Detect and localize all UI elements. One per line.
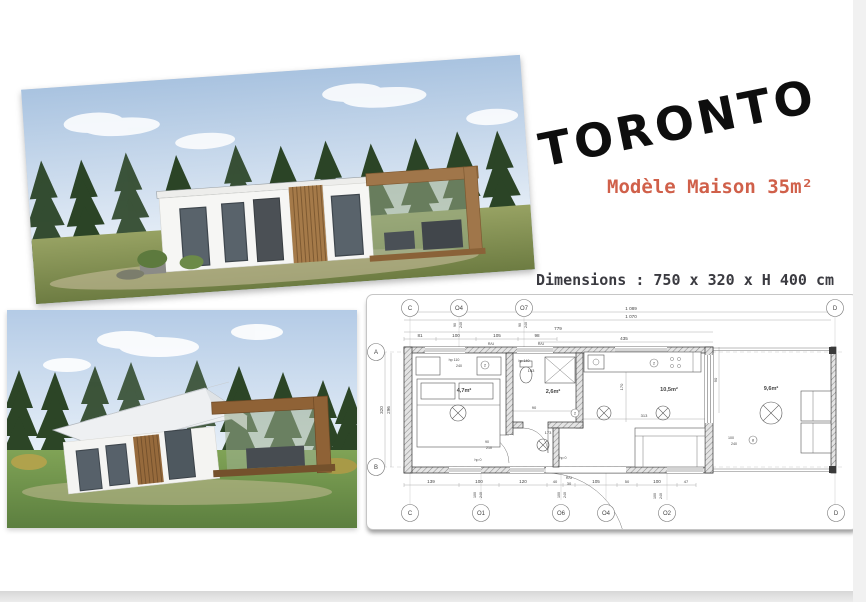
plan-dim-label: 240 (731, 442, 737, 446)
plan-dim-label: 240 (524, 322, 528, 328)
plan-grid-bubble-label: O4 (602, 511, 611, 517)
plan-grid-bubble-label: C (408, 511, 413, 517)
plan-grid-bubble-label: O7 (520, 306, 529, 312)
window (165, 429, 196, 479)
plan-dim-label: 313 (641, 413, 648, 418)
plan-dim-label: 240 (659, 493, 663, 499)
pergola (366, 166, 484, 260)
plan-room-label: 4,7m² (457, 387, 472, 394)
plan-grid-bubble-label: C (408, 306, 413, 312)
plan-grid-bubble-label: O6 (557, 511, 566, 517)
wood-slat-section (289, 185, 328, 263)
plan-dim-label: 1 089 (625, 306, 637, 311)
dimensions-text: Dimensions : 750 x 320 x H 400 cm (536, 271, 858, 289)
plan-dim-label: 240 (563, 492, 567, 498)
model-title: TORONTO (520, 65, 837, 180)
plan-dim-label: R/U (538, 342, 545, 346)
photo-render-gable-roof (7, 310, 357, 528)
plan-dim-label: 90 (518, 323, 522, 327)
front-door (253, 198, 283, 262)
plan-dim-label: 90 (453, 323, 457, 327)
plan-dim-label: R/U (566, 476, 573, 480)
plan-dim-label: 240 (479, 492, 483, 498)
plan-dim-label: 81 (417, 333, 423, 338)
plan-dim-label: hp 0 (475, 458, 482, 462)
window (222, 202, 248, 261)
plan-dim-label: 210 (486, 446, 492, 450)
plan-dim-label: 1 070 (625, 314, 637, 319)
window (76, 449, 102, 491)
window (331, 194, 363, 256)
plan-dim-label: 47 (684, 479, 689, 484)
outdoor-sofa (421, 219, 463, 250)
bush (11, 454, 47, 470)
page-edge-right (853, 0, 866, 602)
plan-dim-label: 163 (528, 368, 535, 373)
plan-dim-label: 105 (493, 333, 501, 338)
plan-grid-bubble-label: O4 (455, 306, 464, 312)
wood-slat-section (133, 434, 164, 484)
plan-dim-label: 779 (554, 326, 562, 331)
plan-dim-label: 40 (553, 479, 558, 484)
model-subtitle: Modèle Maison 35m² (560, 176, 860, 198)
plan-dim-label: 100 (475, 479, 483, 484)
plan-dim-label: 139 (427, 479, 435, 484)
outdoor-sofa (246, 445, 305, 468)
kitchen-counter (584, 352, 701, 372)
photo-render-flat-roof (21, 55, 535, 304)
plan-dim-label: 120 (519, 479, 527, 484)
plan-dim-label: 100 (728, 436, 734, 440)
plan-dim-label: 30 (567, 481, 572, 486)
plan-room-labels: 4,7m²2,6m²10,5m²9,6m² (457, 385, 779, 395)
plan-grid-bubble-label: A (374, 350, 378, 356)
plan-room-label: 10,5m² (660, 386, 678, 393)
plan-dim-label: 90 (532, 405, 537, 410)
plan-grid-bubble-label: B (374, 465, 378, 471)
page-edge-bottom (0, 591, 866, 602)
terrace-glass-door (705, 355, 713, 423)
plan-dim-label: 98 (534, 333, 540, 338)
plan-grid-bubble-label: D (833, 306, 838, 312)
plan-dim-label: 435 (620, 336, 628, 341)
plan-grid-bubble-label: O1 (477, 511, 486, 517)
plan-dim-label: 100 (452, 333, 460, 338)
plan-dim-label: 100 (653, 479, 661, 484)
plan-grid-bubble-label: D (834, 511, 839, 517)
nightstand (416, 357, 440, 375)
plan-dim-label: 100 (473, 492, 477, 498)
plan-dim-label: 100 (557, 492, 561, 498)
plan-room-label: 2,6m² (546, 388, 561, 395)
brochure-page: { "page": { "title": "TORONTO", "subtitl… (0, 0, 866, 602)
terrace-sofa (801, 391, 831, 453)
plan-dim-label: 100 (653, 493, 657, 499)
plan-grid-bubble-label: O2 (663, 511, 672, 517)
pergola (210, 396, 336, 478)
plan-dim-label: hp 140 (519, 359, 530, 363)
plan-dim-label: 240 (459, 322, 463, 328)
plan-dim-label: 105 (592, 479, 600, 484)
plan-room-label: 9,6m² (764, 385, 779, 392)
plan-dim-label: hp 110 (449, 358, 460, 362)
plan-dim-label: 320 (379, 406, 384, 414)
plan-dim-label: 240 (456, 364, 462, 368)
plan-dim-label: hp 0 (560, 456, 567, 460)
plan-dim-label: R/U (488, 342, 495, 346)
plan-dim-label: 173 (545, 430, 552, 435)
sofa (635, 428, 705, 467)
plan-dim-label: 50 (625, 479, 630, 484)
window (106, 444, 130, 486)
plan-dim-label: 170 (619, 383, 624, 390)
plan-dim-label: 90 (713, 377, 718, 382)
floorplan-panel: 1 0891 0707798110010598R/UR/U43590240902… (366, 294, 858, 530)
outdoor-chair (384, 231, 415, 251)
shower (545, 357, 575, 383)
plan-dim-label: 296 (386, 406, 391, 414)
plan-dim-label: 90 (485, 440, 489, 444)
